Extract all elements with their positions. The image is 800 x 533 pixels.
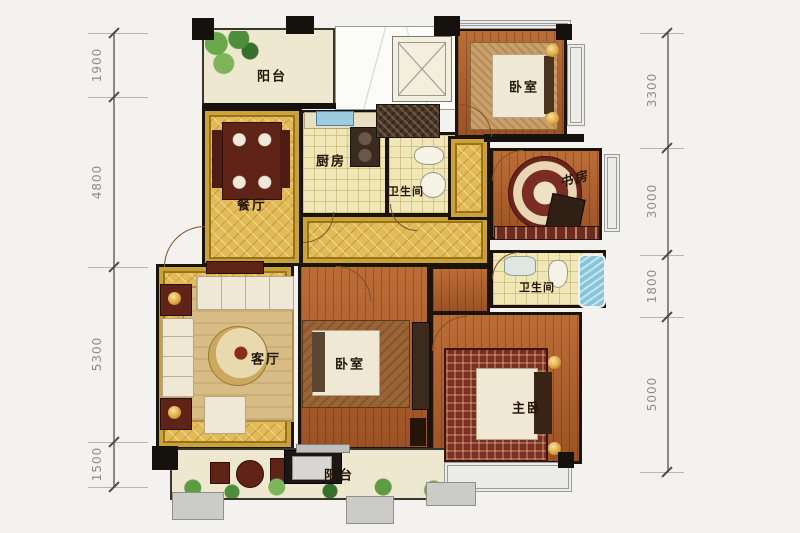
room-label-bathroom-2: 卫生间 — [519, 279, 555, 295]
room-label-balcony-top: 阳台 — [257, 66, 287, 85]
right-extension-line — [640, 317, 684, 318]
table-lamp — [168, 292, 181, 305]
kitchen-sink — [316, 111, 354, 126]
room-label-balcony-bottom: 阳台 — [324, 465, 354, 484]
hallway-branch — [448, 136, 490, 220]
window-study — [604, 154, 620, 232]
room-label-bedroom-top: 卧室 — [509, 77, 539, 96]
room-label-master: 主卧 — [512, 398, 542, 417]
entry-door-arc — [164, 226, 205, 267]
dim-right-3000: 3000 — [645, 184, 659, 219]
left-extension-line — [88, 487, 148, 488]
column-base — [346, 496, 394, 524]
room-label-living: 客厅 — [251, 349, 281, 368]
bathtub — [578, 254, 606, 308]
dining-table — [222, 122, 282, 200]
room-label-kitchen: 厨房 — [316, 151, 346, 170]
right-extension-line — [640, 33, 684, 34]
console-cabinet — [206, 261, 264, 274]
armchair — [204, 396, 246, 434]
sliding-door — [296, 444, 350, 453]
right-extension-line — [640, 148, 684, 149]
sofa-side — [162, 318, 194, 398]
dim-left-1500: 1500 — [90, 447, 104, 482]
bed-headboard — [544, 56, 554, 114]
room-label-bedroom-mid: 卧室 — [335, 354, 365, 373]
wall-pier — [556, 24, 572, 40]
tv-cabinet — [410, 418, 426, 446]
dining-chairs — [280, 130, 290, 188]
wall-pier — [434, 16, 460, 36]
room-label-bathroom-1: 卫生间 — [388, 183, 424, 199]
room-label-dining: 餐厅 — [237, 195, 267, 214]
bedside-lamp — [546, 44, 559, 57]
table-lamp — [168, 406, 181, 419]
toilet — [414, 146, 444, 165]
wall — [484, 134, 584, 142]
wall-pier — [152, 446, 178, 470]
wall-pier — [286, 16, 314, 34]
bedside-lamp — [548, 356, 561, 369]
dim-left-5300: 5300 — [90, 337, 104, 372]
right-extension-line — [640, 472, 684, 473]
bookshelf — [494, 226, 600, 240]
left-extension-line — [88, 267, 148, 268]
column-base — [426, 482, 476, 506]
dim-right-3300: 3300 — [645, 73, 659, 108]
dining-chairs — [212, 130, 222, 188]
left-extension-line — [88, 97, 148, 98]
dim-left-1900: 1900 — [90, 48, 104, 83]
bay-window-bedroom-top — [567, 44, 585, 126]
wardrobe — [412, 322, 430, 410]
wall-pier — [192, 18, 214, 40]
column-base — [172, 492, 224, 520]
dim-right-5000: 5000 — [645, 377, 659, 412]
dim-right-1800: 1800 — [645, 269, 659, 304]
window-top-bedroom — [455, 20, 571, 29]
elevator-shaft — [392, 36, 452, 102]
sofa — [196, 276, 294, 310]
wall-pier — [558, 452, 574, 468]
bedside-lamp — [546, 112, 559, 125]
left-extension-line — [88, 442, 148, 443]
left-dimension-line — [113, 33, 115, 487]
wall — [202, 103, 336, 109]
service-shaft — [376, 104, 440, 138]
left-extension-line — [88, 33, 148, 34]
bed-pillows — [312, 332, 325, 392]
corridor-nook — [430, 266, 490, 314]
floor-plan: 1900 4800 5300 1500 3300 3000 1800 5000 — [0, 0, 800, 533]
right-extension-line — [640, 255, 684, 256]
dim-left-4800: 4800 — [90, 165, 104, 200]
